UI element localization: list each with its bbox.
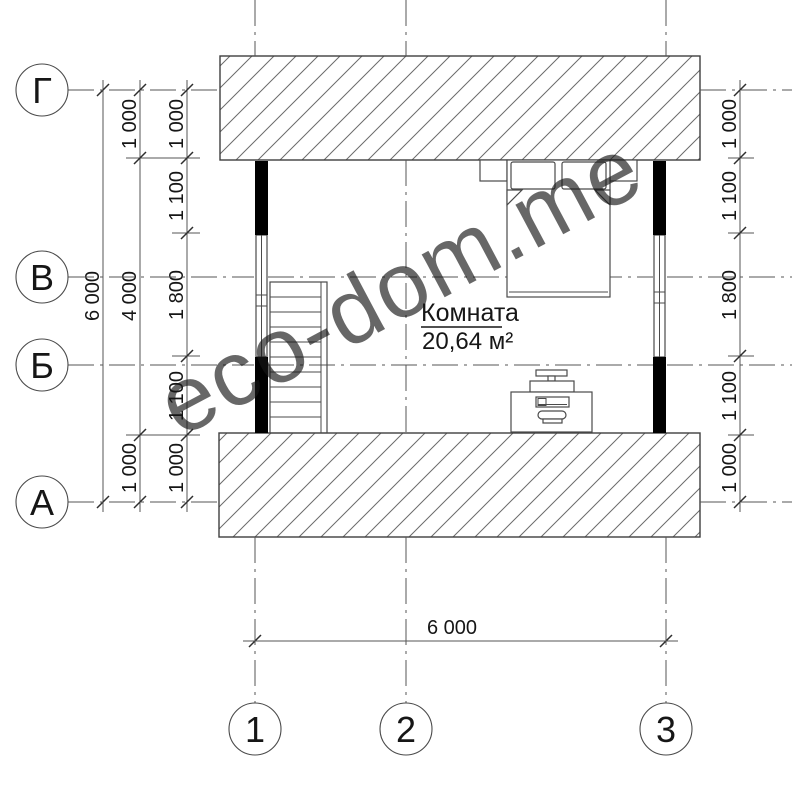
axis-label-2: 2 (396, 709, 416, 750)
dim-right-chain-1: 1 000 (719, 99, 741, 149)
monitor-stand (548, 376, 555, 381)
floor-plan-drawing: 6 000 1 000 4 000 1 000 1 000 1 100 1 80… (0, 0, 800, 800)
top-wall (220, 56, 700, 160)
room-area: 20,64 м² (422, 328, 513, 355)
axis-label-b: Б (30, 345, 54, 386)
right-window (654, 235, 665, 357)
axis-label-g: Г (32, 70, 52, 111)
monitor (536, 370, 567, 376)
post-left-top (255, 161, 268, 235)
chair (538, 411, 566, 419)
chair-base (543, 419, 562, 423)
dim-left-inner: 4 000 (119, 271, 141, 321)
axis-label-1: 1 (245, 709, 265, 750)
axis-label-a: А (30, 482, 54, 523)
dim-right-chain-5: 1 000 (719, 443, 741, 493)
post-right-bottom (653, 357, 666, 433)
dim-right-chain-4: 1 100 (719, 371, 741, 421)
bottom-wall (219, 433, 700, 537)
dim-bottom-total: 6 000 (427, 617, 477, 639)
desk-shelf (530, 381, 574, 392)
dim-left-chain-1: 1 000 (166, 99, 188, 149)
dim-left-total: 6 000 (82, 271, 104, 321)
post-right-top (653, 161, 666, 235)
dim-left-chain-5: 1 000 (166, 443, 188, 493)
axis-label-v: В (30, 257, 54, 298)
dim-left-bottom-offset: 1 000 (119, 443, 141, 493)
axis-label-3: 3 (656, 709, 676, 750)
dim-right-chain-2: 1 100 (719, 171, 741, 221)
dim-left-chain-2: 1 100 (166, 171, 188, 221)
dim-left-top-offset: 1 000 (119, 99, 141, 149)
